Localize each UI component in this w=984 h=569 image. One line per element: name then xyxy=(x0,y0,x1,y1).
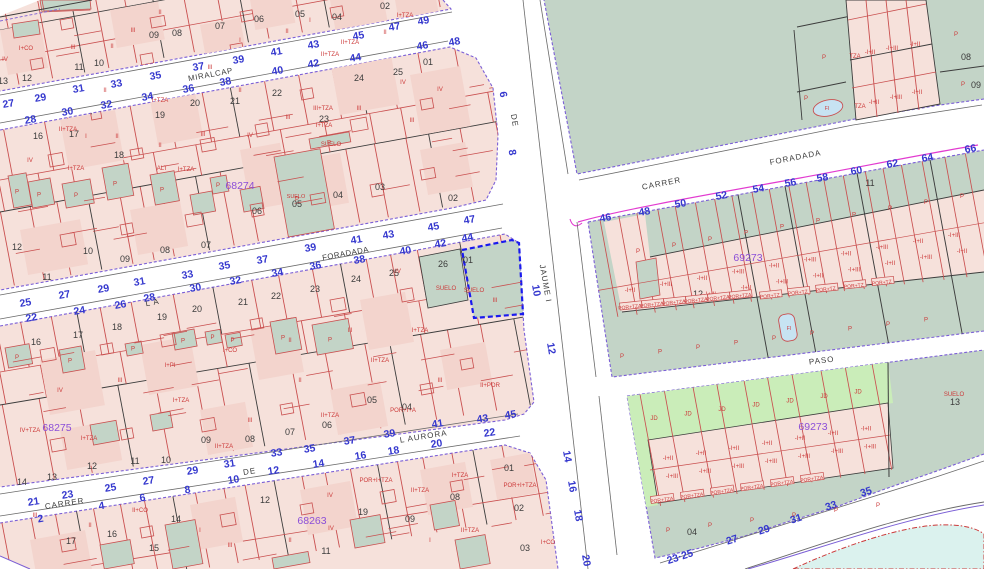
svg-text:IV: IV xyxy=(247,133,253,139)
svg-text:16: 16 xyxy=(354,449,368,463)
svg-text:19: 19 xyxy=(155,110,165,120)
svg-text:18: 18 xyxy=(387,444,401,458)
svg-text:31: 31 xyxy=(133,275,147,289)
svg-text:II: II xyxy=(238,88,242,94)
svg-text:11: 11 xyxy=(130,456,139,466)
svg-text:JD: JD xyxy=(650,416,658,422)
svg-text:P: P xyxy=(750,518,754,524)
svg-text:27: 27 xyxy=(58,288,72,302)
svg-text:54: 54 xyxy=(752,182,766,196)
svg-text:04: 04 xyxy=(333,190,343,200)
svg-text:-I+III: -I+III xyxy=(804,257,817,263)
svg-text:13: 13 xyxy=(950,397,960,407)
svg-text:I+TZA: I+TZA xyxy=(397,13,414,19)
svg-text:I+TZA: I+TZA xyxy=(152,98,169,104)
svg-text:-I+II: -I+II xyxy=(813,273,824,279)
svg-text:01: 01 xyxy=(504,463,514,473)
svg-text:10: 10 xyxy=(94,58,104,68)
svg-text:P: P xyxy=(834,508,838,514)
svg-text:I+TZA: I+TZA xyxy=(68,166,85,172)
svg-text:42: 42 xyxy=(307,57,321,71)
svg-text:P: P xyxy=(810,331,814,337)
svg-text:07: 07 xyxy=(201,240,211,250)
svg-text:36: 36 xyxy=(309,259,323,273)
svg-text:14: 14 xyxy=(17,477,27,487)
svg-text:P: P xyxy=(804,96,808,102)
svg-text:01: 01 xyxy=(463,255,473,265)
svg-text:25: 25 xyxy=(393,67,403,77)
svg-text:06: 06 xyxy=(252,206,262,216)
svg-text:-I+II: -I+II xyxy=(957,249,968,255)
svg-text:POR+I+TZA: POR+I+TZA xyxy=(503,483,536,489)
svg-text:11: 11 xyxy=(42,272,51,282)
svg-text:-I+II: -I+II xyxy=(625,288,636,294)
svg-text:P: P xyxy=(15,190,19,196)
svg-text:II: II xyxy=(288,538,292,544)
svg-text:42: 42 xyxy=(434,237,448,251)
svg-text:41: 41 xyxy=(350,233,364,247)
svg-text:-I+II: -I+II xyxy=(865,50,876,56)
svg-text:26: 26 xyxy=(438,259,448,269)
svg-text:P: P xyxy=(37,192,41,198)
svg-text:11: 11 xyxy=(865,178,874,188)
svg-text:P: P xyxy=(886,322,890,328)
svg-text:P: P xyxy=(816,218,820,224)
svg-text:-I+III: -I+III xyxy=(699,469,712,475)
svg-text:P: P xyxy=(876,503,880,509)
svg-text:-I+II: -I+II xyxy=(910,42,921,48)
svg-text:07: 07 xyxy=(215,21,225,31)
svg-text:II+TZA: II+TZA xyxy=(341,40,359,46)
svg-text:-I+II: -I+II xyxy=(841,251,852,257)
svg-text:46: 46 xyxy=(599,211,613,225)
svg-text:IV: IV xyxy=(437,87,443,93)
svg-text:58: 58 xyxy=(816,171,830,185)
svg-text:16: 16 xyxy=(107,529,117,539)
svg-text:-I+II: -I+II xyxy=(795,436,806,442)
svg-text:P: P xyxy=(68,359,72,365)
svg-text:06: 06 xyxy=(322,420,332,430)
svg-text:-I+II: -I+II xyxy=(762,441,773,447)
svg-text:P: P xyxy=(954,32,958,38)
svg-text:14: 14 xyxy=(312,457,326,471)
svg-text:45: 45 xyxy=(504,408,518,422)
svg-text:II+TZA: II+TZA xyxy=(321,413,339,419)
svg-text:II+TZA: II+TZA xyxy=(411,488,429,494)
svg-text:22: 22 xyxy=(483,426,497,440)
svg-text:35: 35 xyxy=(218,259,232,273)
svg-text:IV: IV xyxy=(27,158,33,164)
svg-text:43: 43 xyxy=(382,228,396,242)
svg-text:10: 10 xyxy=(83,246,93,256)
svg-text:12: 12 xyxy=(544,342,558,356)
svg-text:37: 37 xyxy=(256,253,270,267)
svg-text:08: 08 xyxy=(245,434,255,444)
svg-text:18: 18 xyxy=(112,322,122,332)
svg-text:SUELO: SUELO xyxy=(944,392,965,398)
svg-text:25: 25 xyxy=(104,481,118,495)
svg-text:P: P xyxy=(672,243,676,249)
svg-text:P: P xyxy=(328,338,332,344)
svg-text:47: 47 xyxy=(388,20,402,34)
svg-text:22: 22 xyxy=(271,291,281,301)
svg-text:III: III xyxy=(207,65,212,71)
svg-text:21: 21 xyxy=(238,297,248,307)
svg-text:III+TZA: III+TZA xyxy=(313,106,333,112)
svg-text:48: 48 xyxy=(448,35,462,49)
svg-text:09: 09 xyxy=(971,80,981,90)
svg-text:24: 24 xyxy=(73,304,87,318)
svg-text:FI: FI xyxy=(787,326,791,332)
svg-text:32: 32 xyxy=(100,98,114,112)
svg-text:29: 29 xyxy=(34,91,48,105)
svg-text:IV: IV xyxy=(395,269,401,275)
svg-text:02: 02 xyxy=(380,1,390,11)
svg-text:POR+I+A: POR+I+A xyxy=(390,408,416,414)
svg-text:TZA: TZA xyxy=(849,54,860,60)
svg-text:P: P xyxy=(666,528,670,534)
svg-text:29: 29 xyxy=(97,282,111,296)
svg-text:-I+II: -I+II xyxy=(885,261,896,267)
svg-text:12: 12 xyxy=(87,461,97,471)
svg-text:P: P xyxy=(131,347,135,353)
svg-text:-I+III: -I+III xyxy=(765,459,778,465)
svg-text:-I+III: -I+III xyxy=(660,282,673,288)
svg-text:08: 08 xyxy=(160,245,170,255)
svg-text:-I+III: -I+III xyxy=(864,444,877,450)
svg-text:04: 04 xyxy=(687,527,697,537)
svg-text:14: 14 xyxy=(171,514,181,524)
svg-text:III: III xyxy=(130,28,135,34)
svg-text:III: III xyxy=(356,106,361,112)
svg-text:17: 17 xyxy=(66,536,76,546)
svg-text:II: II xyxy=(288,338,292,344)
svg-text:JD: JD xyxy=(718,407,726,413)
svg-text:01: 01 xyxy=(423,57,433,67)
svg-text:40: 40 xyxy=(399,244,413,258)
svg-text:13: 13 xyxy=(47,472,57,482)
svg-text:39: 39 xyxy=(304,241,318,255)
svg-text:I+CO: I+CO xyxy=(19,46,34,52)
svg-text:II: II xyxy=(383,30,387,36)
svg-text:69273: 69273 xyxy=(733,252,762,264)
svg-text:JD: JD xyxy=(684,412,692,418)
svg-text:-I+III: -I+III xyxy=(798,454,811,460)
svg-text:20: 20 xyxy=(579,554,593,568)
svg-text:-I+III: -I+III xyxy=(732,464,745,470)
svg-text:25: 25 xyxy=(19,296,33,310)
svg-text:III: III xyxy=(437,378,442,384)
svg-text:I+TZA: I+TZA xyxy=(316,123,333,129)
svg-text:47: 47 xyxy=(463,213,477,227)
svg-text:29: 29 xyxy=(186,464,200,478)
svg-text:41: 41 xyxy=(270,45,284,59)
svg-text:I+TZA: I+TZA xyxy=(412,328,429,334)
svg-text:-I+II: -I+II xyxy=(861,426,872,432)
svg-text:P: P xyxy=(230,338,234,344)
svg-text:II+CO: II+CO xyxy=(132,508,148,514)
svg-text:I+TZA: I+TZA xyxy=(81,436,98,442)
svg-text:P: P xyxy=(772,336,776,342)
svg-text:17: 17 xyxy=(73,330,83,340)
svg-text:II: II xyxy=(103,88,107,94)
svg-text:21: 21 xyxy=(230,96,240,106)
svg-text:09: 09 xyxy=(405,514,415,524)
svg-text:IV+TZA: IV+TZA xyxy=(20,428,41,434)
svg-text:23: 23 xyxy=(310,284,320,294)
svg-text:22: 22 xyxy=(272,88,282,98)
svg-text:III: III xyxy=(227,543,232,549)
svg-text:12: 12 xyxy=(12,242,22,252)
svg-text:39: 39 xyxy=(383,427,397,441)
svg-text:P: P xyxy=(852,212,856,218)
svg-text:19: 19 xyxy=(157,312,167,322)
svg-text:16: 16 xyxy=(565,480,579,494)
svg-text:P: P xyxy=(780,225,784,231)
svg-text:24: 24 xyxy=(351,274,361,284)
svg-text:27: 27 xyxy=(142,474,156,488)
svg-text:III: III xyxy=(247,418,252,424)
svg-text:-I+III: -I+III xyxy=(920,255,933,261)
svg-text:33: 33 xyxy=(270,446,284,460)
svg-text:44: 44 xyxy=(349,51,363,65)
svg-text:18: 18 xyxy=(571,509,585,523)
svg-text:69273: 69273 xyxy=(798,421,827,433)
svg-text:I+TZA: I+TZA xyxy=(452,473,469,479)
svg-text:III: III xyxy=(409,118,414,124)
svg-text:32: 32 xyxy=(229,274,243,288)
svg-text:31: 31 xyxy=(223,457,237,471)
svg-text:SUELO: SUELO xyxy=(321,142,342,148)
svg-text:JD: JD xyxy=(786,398,794,404)
svg-text:P: P xyxy=(961,82,965,88)
svg-text:43: 43 xyxy=(476,412,490,426)
svg-text:44: 44 xyxy=(461,231,475,245)
svg-text:34: 34 xyxy=(271,266,285,280)
svg-text:09: 09 xyxy=(120,254,130,264)
svg-text:43: 43 xyxy=(307,38,321,52)
svg-text:13: 13 xyxy=(0,76,8,86)
svg-text:P: P xyxy=(658,349,662,355)
svg-text:56: 56 xyxy=(784,176,798,190)
svg-text:P: P xyxy=(708,523,712,529)
svg-text:06: 06 xyxy=(254,14,264,24)
svg-text:JD: JD xyxy=(820,394,828,400)
svg-text:-I+III: -I+III xyxy=(831,449,844,455)
svg-text:12: 12 xyxy=(267,464,281,478)
svg-text:P: P xyxy=(216,183,220,189)
svg-text:IV: IV xyxy=(57,388,63,394)
svg-text:15: 15 xyxy=(149,543,159,553)
svg-text:II+POR: II+POR xyxy=(480,383,501,389)
svg-text:-I+II: -I+II xyxy=(828,431,839,437)
svg-text:-I+III: -I+III xyxy=(890,95,903,101)
svg-text:49: 49 xyxy=(417,14,431,28)
svg-text:08: 08 xyxy=(961,52,971,62)
svg-text:P: P xyxy=(636,249,640,255)
svg-text:36: 36 xyxy=(182,82,196,96)
svg-text:10: 10 xyxy=(161,455,171,465)
svg-text:-I+II: -I+II xyxy=(663,456,674,462)
svg-text:ALT: ALT xyxy=(157,166,168,172)
svg-text:P: P xyxy=(924,318,928,324)
svg-text:I+CO: I+CO xyxy=(223,348,238,354)
svg-text:P: P xyxy=(708,237,712,243)
svg-text:11: 11 xyxy=(321,546,330,556)
svg-text:09: 09 xyxy=(149,30,159,40)
svg-text:II: II xyxy=(115,134,119,140)
svg-text:JD: JD xyxy=(752,403,760,409)
svg-text:II+TZA: II+TZA xyxy=(59,127,77,133)
svg-text:11: 11 xyxy=(74,62,83,72)
svg-text:II: II xyxy=(285,29,289,35)
svg-text:14: 14 xyxy=(560,450,574,464)
svg-text:35: 35 xyxy=(149,69,163,83)
svg-text:I+PI: I+PI xyxy=(165,363,176,369)
svg-text:-I+II: -I+II xyxy=(913,239,924,245)
svg-text:P: P xyxy=(734,340,738,346)
svg-text:-I+II: -I+II xyxy=(869,100,880,106)
svg-text:27: 27 xyxy=(2,97,16,111)
svg-text:P: P xyxy=(792,513,796,519)
svg-text:-I+III: -I+III xyxy=(732,270,745,276)
svg-text:P: P xyxy=(620,354,624,360)
svg-text:66: 66 xyxy=(964,142,978,156)
svg-text:08: 08 xyxy=(172,28,182,38)
svg-text:-I+III: -I+III xyxy=(886,46,899,52)
svg-text:-I+II: -I+II xyxy=(696,451,707,457)
svg-text:07: 07 xyxy=(285,427,295,437)
svg-text:II: II xyxy=(158,10,162,16)
svg-text:FI: FI xyxy=(825,106,829,112)
svg-text:20: 20 xyxy=(192,304,202,314)
svg-text:P: P xyxy=(181,338,185,344)
svg-text:I+TZA: I+TZA xyxy=(173,398,190,404)
svg-text:22: 22 xyxy=(25,311,39,325)
svg-text:III: III xyxy=(492,298,497,304)
svg-text:50: 50 xyxy=(674,197,688,211)
svg-text:20: 20 xyxy=(190,98,200,108)
svg-text:TZA: TZA xyxy=(854,104,865,110)
svg-text:IV: IV xyxy=(328,526,334,532)
svg-text:68275: 68275 xyxy=(42,422,71,434)
svg-text:-I+III: -I+III xyxy=(876,245,889,251)
svg-text:-I+II: -I+II xyxy=(769,264,780,270)
svg-text:62: 62 xyxy=(886,157,900,171)
svg-text:68274: 68274 xyxy=(225,180,254,192)
svg-text:I+CO: I+CO xyxy=(541,540,556,546)
svg-text:48: 48 xyxy=(638,205,652,219)
svg-text:III: III xyxy=(117,378,122,384)
svg-text:JD: JD xyxy=(854,390,862,396)
svg-text:05: 05 xyxy=(292,199,302,209)
svg-text:03: 03 xyxy=(375,182,385,192)
svg-text:16: 16 xyxy=(33,131,43,141)
svg-text:04: 04 xyxy=(332,12,342,22)
svg-text:-I+III: -I+III xyxy=(666,474,679,480)
svg-text:-I+III: -I+III xyxy=(776,280,789,286)
svg-text:II: II xyxy=(158,143,162,149)
svg-text:II: II xyxy=(88,523,92,529)
svg-text:33: 33 xyxy=(110,77,124,91)
svg-text:-I+III: -I+III xyxy=(848,267,861,273)
svg-text:P: P xyxy=(960,194,964,200)
svg-text:III: III xyxy=(347,328,352,334)
svg-text:16: 16 xyxy=(31,337,41,347)
svg-text:09: 09 xyxy=(201,435,211,445)
svg-text:IV: IV xyxy=(400,80,406,86)
svg-text:31: 31 xyxy=(72,82,86,96)
svg-text:III: III xyxy=(285,115,290,121)
svg-text:IV: IV xyxy=(327,493,333,499)
svg-text:-I+III: -I+III xyxy=(948,233,961,239)
svg-text:II: II xyxy=(110,44,114,50)
svg-text:10: 10 xyxy=(227,473,241,487)
svg-text:II: II xyxy=(298,378,302,384)
svg-text:28: 28 xyxy=(24,113,38,127)
svg-text:-I+II: -I+II xyxy=(729,446,740,452)
svg-text:02: 02 xyxy=(514,503,524,513)
svg-text:-I+II: -I+II xyxy=(912,90,923,96)
svg-text:P: P xyxy=(848,327,852,333)
svg-text:40: 40 xyxy=(271,64,285,78)
svg-text:35: 35 xyxy=(303,442,317,456)
svg-text:-I+II: -I+II xyxy=(697,276,708,282)
svg-text:24: 24 xyxy=(354,73,364,83)
svg-text:68263: 68263 xyxy=(297,515,326,527)
svg-text:III: III xyxy=(70,45,75,51)
svg-text:P: P xyxy=(822,55,826,61)
svg-text:39: 39 xyxy=(232,53,246,67)
svg-text:64: 64 xyxy=(921,151,935,165)
svg-text:P: P xyxy=(327,141,331,147)
svg-text:46: 46 xyxy=(416,39,430,53)
svg-text:12: 12 xyxy=(260,495,270,505)
svg-text:12: 12 xyxy=(22,73,32,83)
svg-text:60: 60 xyxy=(850,164,864,178)
svg-text:SUELO: SUELO xyxy=(436,286,457,292)
svg-text:I+TZA: I+TZA xyxy=(178,167,195,173)
svg-text:52: 52 xyxy=(715,189,729,203)
svg-text:P: P xyxy=(74,193,78,199)
svg-text:P: P xyxy=(924,200,928,206)
svg-text:IV: IV xyxy=(2,57,8,63)
svg-text:18: 18 xyxy=(114,150,124,160)
svg-text:P: P xyxy=(15,355,19,361)
svg-text:08: 08 xyxy=(450,492,460,502)
svg-text:03: 03 xyxy=(520,543,530,553)
svg-text:III: III xyxy=(200,132,205,138)
svg-text:33: 33 xyxy=(181,268,195,282)
svg-text:10: 10 xyxy=(529,284,543,298)
svg-text:30: 30 xyxy=(61,105,75,119)
svg-text:II+TZA: II+TZA xyxy=(215,444,233,450)
svg-text:05: 05 xyxy=(367,395,377,405)
svg-text:37: 37 xyxy=(343,434,357,448)
svg-text:II+TZA: II+TZA xyxy=(371,358,389,364)
svg-text:P: P xyxy=(888,206,892,212)
svg-text:26: 26 xyxy=(114,298,128,312)
svg-text:02: 02 xyxy=(448,193,458,203)
svg-text:19: 19 xyxy=(358,507,368,517)
svg-text:P: P xyxy=(281,336,285,342)
svg-text:30: 30 xyxy=(189,281,203,295)
svg-text:SUELO: SUELO xyxy=(464,288,485,294)
svg-text:POR+I+TZA: POR+I+TZA xyxy=(359,478,392,484)
svg-text:P: P xyxy=(744,231,748,237)
svg-text:III: III xyxy=(32,513,37,519)
svg-text:P: P xyxy=(160,188,164,194)
